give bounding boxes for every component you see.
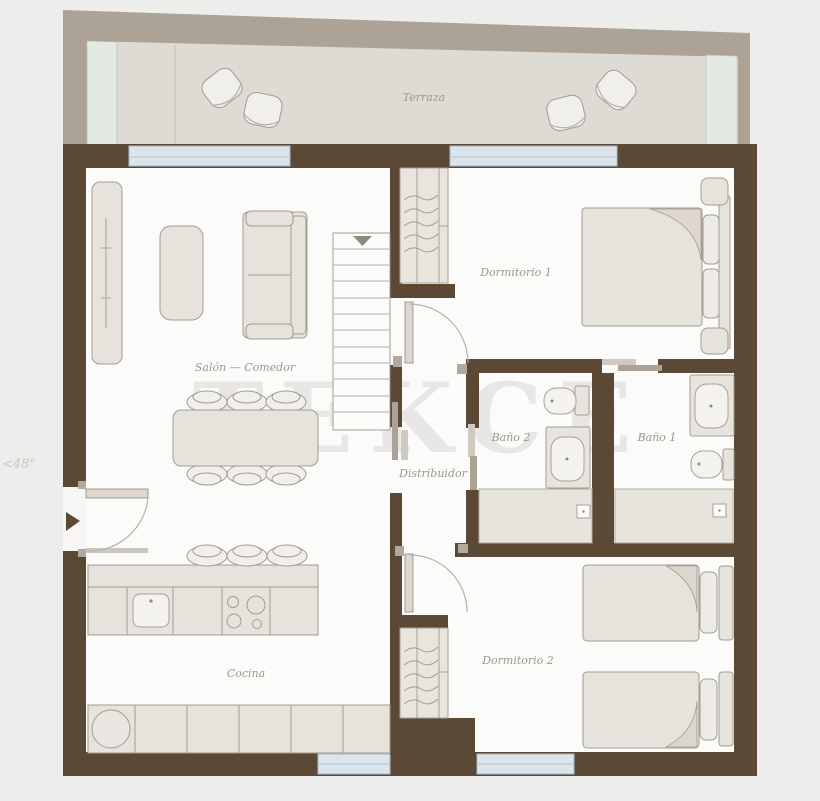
kitchen-sink bbox=[133, 594, 169, 627]
wall-left bbox=[63, 144, 86, 776]
dining-chairs-bottom bbox=[187, 464, 306, 485]
sliding-door-salon-leaf bbox=[401, 430, 408, 460]
terrace-glass-left bbox=[87, 41, 117, 145]
pillow bbox=[700, 572, 717, 633]
sink bbox=[690, 375, 734, 436]
kitchen-lower-cabinets bbox=[88, 705, 390, 753]
kitchen-stools bbox=[187, 545, 307, 566]
room-label-bano2: Baño 2 bbox=[491, 431, 531, 444]
sofa bbox=[243, 211, 307, 339]
closet-dormitorio1 bbox=[400, 168, 448, 283]
room-label-salon: Salón — Comedor bbox=[195, 361, 296, 374]
kitchen-bar-counter bbox=[88, 565, 318, 587]
watermark-fragment: <48° bbox=[2, 457, 36, 472]
pillow bbox=[703, 215, 719, 264]
nightstand bbox=[701, 178, 728, 205]
headboard bbox=[719, 196, 730, 349]
sink bbox=[546, 427, 590, 488]
floor-plan-page: Terraza TEKCE <48° bbox=[0, 0, 820, 801]
dining-table bbox=[173, 410, 318, 466]
dining-set bbox=[173, 391, 318, 485]
sofa-armrest bbox=[246, 211, 293, 226]
media-unit bbox=[92, 182, 122, 364]
window-salon bbox=[129, 146, 290, 166]
sliding-door-bano2 bbox=[468, 424, 475, 457]
toilet bbox=[691, 449, 734, 480]
floor-plan: Terraza TEKCE <48° bbox=[0, 0, 820, 801]
window-dormitorio1 bbox=[450, 146, 617, 166]
toilet bbox=[544, 386, 589, 415]
bed-single-1 bbox=[583, 565, 733, 641]
room-label-cocina: Cocina bbox=[227, 667, 265, 680]
door-dormitorio2-leaf bbox=[405, 554, 413, 612]
entrance-door-leaf bbox=[86, 489, 148, 498]
stairs bbox=[333, 233, 390, 430]
room-label-distribuidor: Distribuidor bbox=[398, 467, 467, 480]
wall-banos-top-right bbox=[658, 359, 734, 373]
bed-single-2 bbox=[583, 672, 733, 748]
headboard bbox=[719, 566, 733, 640]
washing-machine bbox=[92, 710, 130, 748]
sliding-door-bano2-leaf bbox=[470, 456, 477, 490]
sofa-armrest bbox=[246, 324, 293, 339]
headboard bbox=[719, 672, 733, 746]
sliding-door-bano1 bbox=[602, 359, 636, 365]
shower bbox=[615, 489, 733, 543]
shower bbox=[479, 489, 592, 543]
sofa-back bbox=[291, 216, 306, 334]
wall-closet2-base bbox=[390, 718, 475, 754]
wall-banos-bottom bbox=[455, 543, 734, 557]
pillow bbox=[703, 269, 719, 318]
nightstand bbox=[701, 328, 728, 354]
kitchen-island bbox=[88, 565, 318, 635]
room-label-dormitorio1: Dormitorio 1 bbox=[479, 266, 552, 279]
room-label-terraza: Terraza bbox=[403, 91, 445, 104]
pillow bbox=[700, 679, 717, 740]
kitchen-counter bbox=[88, 587, 318, 635]
wall-right bbox=[734, 144, 757, 776]
sliding-door-bano1-leaf bbox=[618, 365, 662, 371]
wall-bano2-left-upper bbox=[466, 373, 479, 428]
wall-banos-top-left bbox=[466, 359, 602, 373]
room-label-dormitorio2: Dormitorio 2 bbox=[481, 654, 554, 667]
dining-chairs-top bbox=[187, 391, 306, 412]
room-label-bano1: Baño 1 bbox=[637, 431, 677, 444]
wall-banos-divider bbox=[592, 373, 614, 545]
coffee-table bbox=[160, 226, 203, 320]
door-dormitorio1-leaf bbox=[405, 302, 413, 363]
sliding-door-salon bbox=[392, 402, 398, 460]
wall-closet1-stub bbox=[390, 284, 455, 298]
terrace-glass-right bbox=[706, 55, 737, 145]
wall-bottom bbox=[63, 752, 757, 776]
terrace: Terraza bbox=[63, 10, 750, 145]
closet-dormitorio2 bbox=[400, 628, 448, 718]
wall-dorm2-stub bbox=[402, 615, 448, 628]
